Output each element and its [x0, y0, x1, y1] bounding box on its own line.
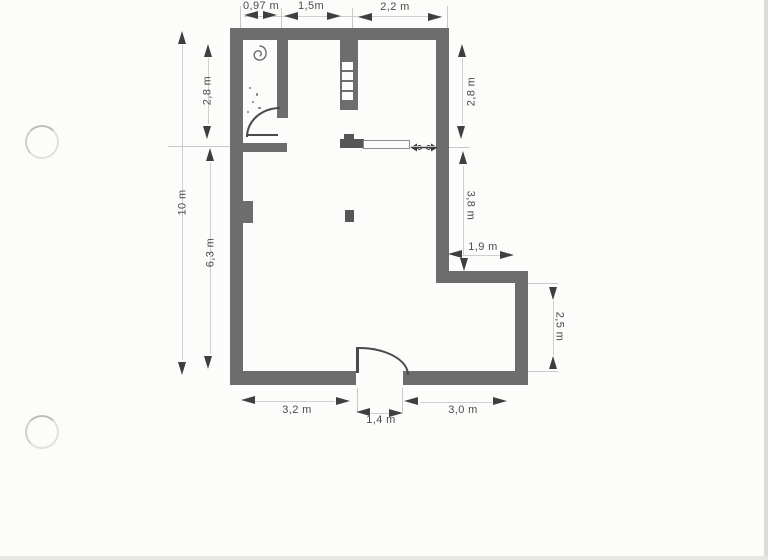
dim-arrow-up-icon — [459, 151, 467, 164]
wall-bottom-right — [403, 371, 528, 385]
extension-line — [447, 6, 448, 28]
dim-label-top-mid: 1,5m — [290, 0, 332, 13]
dim-arrow-up-icon — [549, 356, 557, 369]
dim-label-top-left: 0,97 m — [234, 0, 288, 13]
dimension-line — [255, 401, 335, 402]
extension-line — [528, 371, 558, 372]
speckle-dot — [258, 107, 261, 109]
dimension-line — [462, 58, 463, 124]
dimension-line — [462, 255, 500, 256]
wall-pillar — [243, 201, 253, 223]
dim-arrow-right-icon — [336, 397, 350, 405]
closet-stub-wall — [243, 143, 287, 152]
dim-arrow-right-icon — [327, 12, 341, 20]
wall-right-upper — [436, 28, 449, 283]
dim-label-right-lower: 2,5 m — [553, 306, 566, 348]
dim-arrow-up-icon — [458, 44, 466, 57]
dim-label-bottom-mid: 1,4 m — [361, 414, 401, 427]
dim-label-bottom-left: 3,2 m — [274, 404, 320, 417]
extension-line — [449, 147, 470, 148]
dim-label-bottom-right: 3,0 m — [440, 404, 486, 417]
extension-line — [408, 146, 436, 147]
wall-left — [230, 28, 243, 385]
hole-punch-icon — [25, 125, 59, 159]
dim-arrow-left-icon — [404, 397, 418, 405]
extension-line — [168, 146, 230, 147]
stair-tread-icon — [342, 82, 353, 90]
stair-tread-icon — [342, 62, 353, 70]
counter-fixture — [344, 134, 354, 139]
dim-arrow-left-icon — [284, 12, 298, 20]
page-edge-shadow — [0, 556, 768, 560]
door-arc — [359, 347, 409, 375]
speckle-dot — [256, 93, 258, 96]
dim-arrow-down-icon — [204, 356, 212, 369]
dim-arrow-down-icon — [460, 258, 468, 271]
dim-arrow-left-icon — [241, 396, 255, 404]
scanned-floor-plan-page: 0,97 m 1,5m 2,2 m 10 m 2,8 m 6,3 m 2,8 m… — [0, 0, 768, 560]
dim-label-right-upper: 2,8 m — [466, 71, 479, 113]
dim-arrow-down-icon — [549, 287, 557, 300]
spiral-icon — [250, 43, 270, 65]
closet-door-arc — [246, 107, 280, 137]
stair-tread-icon — [342, 92, 353, 100]
dim-label-top-right: 2,2 m — [372, 1, 418, 14]
dimension-line — [420, 402, 492, 403]
counter-fixture — [340, 139, 364, 148]
dim-arrow-right-icon — [493, 397, 507, 405]
dim-label-right-mid: 3,8 m — [464, 185, 477, 227]
dim-arrow-down-icon — [178, 362, 186, 375]
center-column — [345, 210, 354, 222]
extension-line — [528, 283, 558, 284]
dim-label-left-lower: 6,3 m — [205, 232, 218, 274]
wall-bottom-left — [230, 371, 356, 385]
dim-arrow-up-icon — [206, 148, 214, 161]
dim-arrow-up-icon — [178, 31, 186, 44]
wall-top — [230, 28, 449, 40]
dim-arrow-down-icon — [203, 126, 211, 139]
page-edge-shadow — [764, 0, 768, 560]
speckle-dot — [247, 111, 249, 113]
wall-right-lower — [515, 271, 528, 385]
hole-punch-icon — [25, 415, 59, 449]
dim-arrow-left-icon — [448, 250, 462, 258]
dim-label-left-upper: 2,8 m — [202, 70, 215, 112]
speckle-dot — [249, 87, 251, 89]
speckle-dot — [252, 101, 254, 103]
extension-line — [352, 8, 353, 28]
dim-label-left-outer: 10 m — [177, 182, 190, 224]
double-arrow-icon — [410, 142, 438, 153]
stair-tread-icon — [342, 72, 353, 80]
dim-arrow-right-icon — [428, 13, 442, 21]
dim-arrow-left-icon — [358, 13, 372, 21]
counter-outline — [363, 140, 410, 149]
dim-label-right-step: 1,9 m — [462, 241, 504, 254]
dim-arrow-up-icon — [204, 44, 212, 57]
dim-arrow-down-icon — [457, 126, 465, 139]
